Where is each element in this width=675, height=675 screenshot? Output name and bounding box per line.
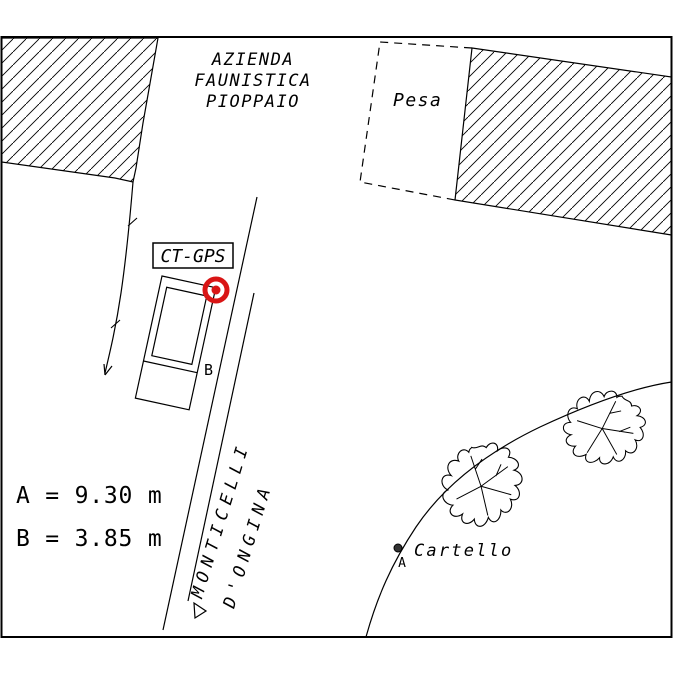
- site-sketch-canvas: Pesa AZIENDA FAUNISTICA PIOPPAIO B CT-GP…: [0, 0, 675, 675]
- cartello-point-marker: [394, 544, 402, 552]
- area-title-line2: FAUNISTICA: [194, 71, 311, 91]
- point-b-label: B: [204, 361, 213, 379]
- measurement-b: B = 3.85 m: [16, 526, 162, 552]
- point-a-label: A: [398, 556, 406, 571]
- measurement-a: A = 9.30 m: [16, 483, 162, 509]
- station-label: CT-GPS: [160, 246, 225, 267]
- gps-target-dot: [212, 286, 221, 295]
- pesa-label: Pesa: [393, 90, 442, 111]
- cartello-label: Cartello: [414, 541, 513, 561]
- hatched-building-top-left: [2, 38, 159, 182]
- area-title: AZIENDA FAUNISTICA PIOPPAIO: [194, 50, 311, 112]
- area-title-line1: AZIENDA: [211, 50, 294, 70]
- area-title-line3: PIOPPAIO: [206, 92, 300, 112]
